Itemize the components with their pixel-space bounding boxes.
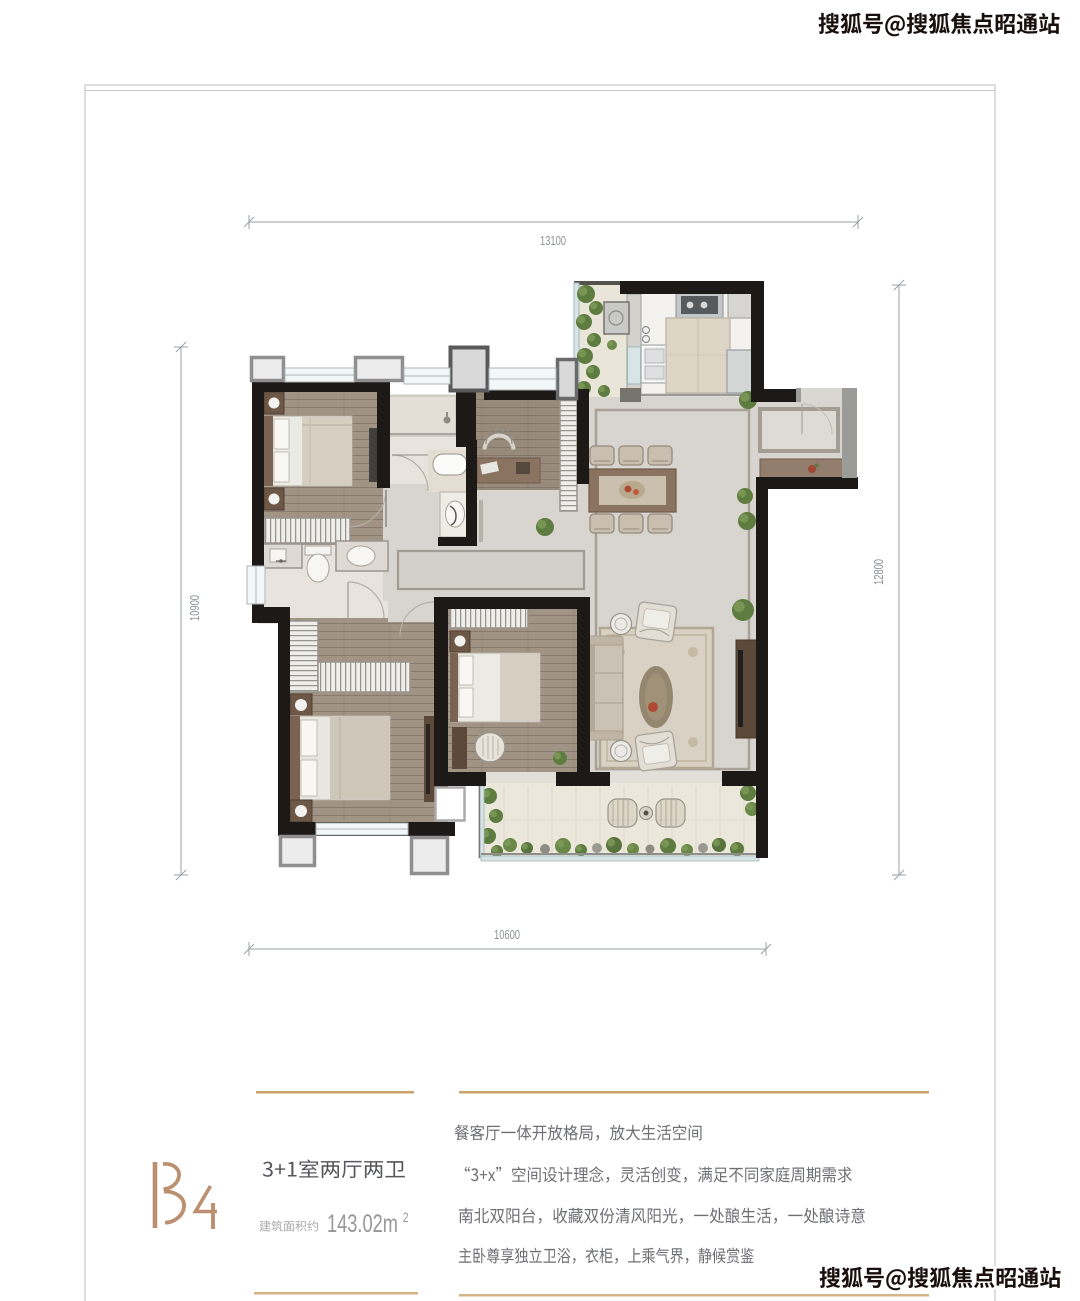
svg-text:2: 2 — [403, 1209, 409, 1225]
svg-text:10900: 10900 — [189, 595, 203, 621]
svg-text:13100: 13100 — [540, 235, 566, 249]
svg-text:12800: 12800 — [873, 559, 887, 585]
svg-text:10600: 10600 — [494, 929, 520, 943]
svg-text:143.02m: 143.02m — [327, 1209, 398, 1238]
